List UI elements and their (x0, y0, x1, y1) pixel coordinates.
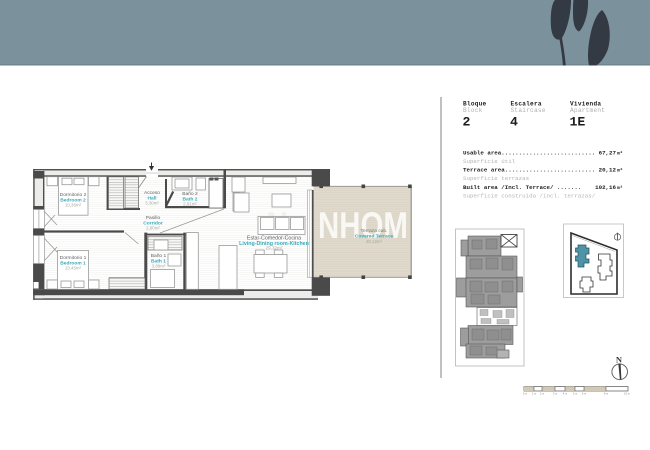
svg-text:2 m: 2 m (540, 392, 544, 396)
svg-text:2: 2 (463, 115, 471, 130)
svg-text:Terraza cub.: Terraza cub. (361, 228, 388, 234)
svg-text:1E: 1E (570, 115, 586, 130)
svg-text:3,89m²: 3,89m² (152, 264, 166, 269)
svg-text:Usable area...................: Usable area........................... (463, 149, 595, 156)
svg-text:102,16: 102,16 (595, 184, 616, 191)
svg-text:Baño 1: Baño 1 (151, 253, 167, 259)
svg-text:6 m: 6 m (582, 392, 586, 396)
svg-text:4 m: 4 m (563, 392, 567, 396)
svg-text:Staircase: Staircase (511, 107, 546, 114)
svg-text:Apartment: Apartment (570, 107, 605, 114)
svg-text:Terrace area..................: Terrace area.......................... (463, 167, 595, 174)
svg-text:Pasillo: Pasillo (146, 215, 161, 221)
svg-text:Built area /Incl. Terrace/ ...: Built area /Incl. Terrace/ ....... (463, 184, 581, 191)
svg-text:5 m: 5 m (573, 392, 577, 396)
svg-text:3 m: 3 m (553, 392, 557, 396)
svg-text:10,36m²: 10,36m² (65, 203, 82, 208)
svg-text:Superficie construida /incl. t: Superficie construida /incl. terrazas/ (463, 192, 596, 199)
svg-text:N: N (616, 355, 623, 365)
svg-text:29,32m²: 29,32m² (266, 246, 283, 251)
svg-text:Superficie terrazas: Superficie terrazas (463, 175, 529, 182)
svg-text:Baño 2: Baño 2 (182, 191, 198, 197)
svg-text:20,12: 20,12 (599, 167, 617, 174)
svg-text:m²: m² (617, 169, 623, 174)
svg-text:4: 4 (510, 115, 518, 130)
svg-text:10 m: 10 m (624, 392, 630, 396)
svg-text:Acceso: Acceso (144, 190, 160, 196)
svg-text:m²: m² (617, 151, 623, 156)
svg-text:8 m: 8 m (604, 392, 608, 396)
svg-text:3,30m²: 3,30m² (145, 201, 159, 206)
svg-text:2,91m²: 2,91m² (183, 202, 197, 207)
svg-text:Block: Block (463, 107, 483, 114)
svg-text:Superficie útil: Superficie útil (463, 158, 516, 165)
svg-text:13,45m²: 13,45m² (65, 266, 82, 271)
svg-text:Dormitorio 1: Dormitorio 1 (60, 255, 87, 261)
svg-text:m²: m² (617, 186, 623, 191)
svg-text:67,27: 67,27 (599, 149, 617, 156)
svg-text:Dormitorio 2: Dormitorio 2 (60, 192, 87, 198)
svg-text:1 m: 1 m (532, 392, 536, 396)
svg-text:20,12m²: 20,12m² (366, 239, 383, 244)
svg-text:NHOM: NHOM (318, 205, 408, 247)
svg-text:2,90m²: 2,90m² (146, 226, 160, 231)
svg-text:0 m: 0 m (523, 392, 527, 396)
